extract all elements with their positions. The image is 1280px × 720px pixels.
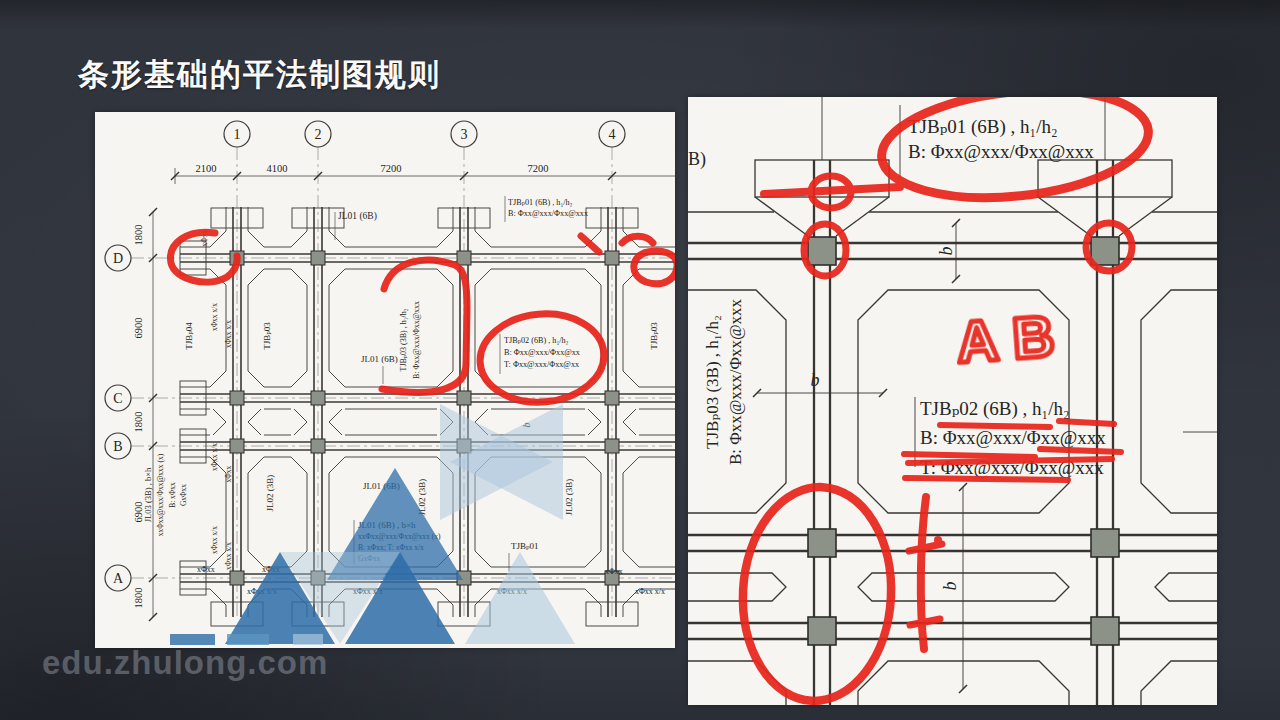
right-plan-svg: B) TJBₚ01 (6B) , h₁/h₂ B: Φxx@xxx/Φxx@xx… — [688, 97, 1217, 705]
right-plan-image: B) TJBₚ01 (6B) , h₁/h₂ B: Φxx@xxx/Φxx@xx… — [688, 97, 1217, 705]
label-tjbp01-1: TJBₚ01 (6B) , h₁/h₂ — [508, 198, 573, 207]
site-watermark: edu.zhulong.com — [42, 644, 328, 682]
label-jl03-2: xxΦxx@xxx/Φxx@xxx (x) — [156, 453, 165, 536]
label-tjbp03-full-1: TJBₚ03 (3B) , h₁/h₂ — [399, 308, 408, 371]
annotation-small-o — [634, 251, 675, 284]
axis-2: 2 — [315, 127, 322, 142]
column-square — [1091, 237, 1119, 265]
label-rebar-v2: xΦxx x/x — [210, 303, 219, 331]
dim-left-1: 1800 — [133, 225, 144, 246]
label-tjbp02-line1: TJBₚ02 (6B) , h₁/h₂ — [920, 398, 1070, 420]
label-tjbp02-1: TJBₚ02 (6B) , h₁/h₂ — [504, 336, 569, 345]
label-rebar-v4: xΦxx x/x — [210, 443, 219, 471]
annotation-dot — [934, 536, 942, 544]
label-edge: B) — [688, 149, 706, 170]
label-tjbp01-2: B: Φxx@xxx/Φxx@xxx — [508, 209, 588, 218]
video-frame: 条形基础的平法制图规则 2100 4 — [0, 0, 1280, 720]
annotation-ab-text: AB — [954, 302, 1070, 375]
label-rebar-s3: xΦxx — [605, 567, 623, 576]
annotation-underline — [904, 454, 1035, 457]
axis-1: 1 — [234, 127, 241, 142]
dim-top-3: 7200 — [381, 163, 402, 174]
dim-left-2: 6900 — [133, 318, 144, 339]
dim-left-5: 1800 — [133, 588, 144, 609]
label-tjbp01-line1: TJBₚ01 (6B) , h₁/h₂ — [908, 116, 1058, 138]
dim-top-4: 7200 — [528, 163, 549, 174]
column-square — [808, 617, 836, 645]
label-rebar-4: xΦxx x/x — [635, 587, 665, 596]
annotation-arc — [622, 236, 653, 243]
label-jl01-mid: JL01 (6B) — [361, 354, 398, 364]
label-tjbp02-line2: B: Φxx@xxx/Φxx@xxx — [920, 427, 1106, 448]
label-b-bottom: b — [940, 582, 960, 591]
label-tjbp04: TJBₚ04 — [184, 322, 194, 350]
page-title: 条形基础的平法制图规则 — [78, 54, 441, 96]
left-plan-svg: 2100 4100 7200 7200 1800 6900 1800 6900 … — [95, 112, 675, 648]
annotation-strike-line — [764, 187, 900, 194]
label-jl02-1: JL02 (3B) — [265, 475, 275, 512]
label-jl03-3: B: xΦxx — [168, 482, 177, 508]
label-tjbp02-3: T: Φxx@xxx/Φxx@xx — [504, 360, 579, 369]
dim-left-3: 1800 — [133, 412, 144, 433]
dim-top-1: 2100 — [196, 163, 217, 174]
label-jl03-1: JL03 (3B) , b×h — [143, 467, 153, 522]
label-rebar-v3: xΦxx x/x — [224, 320, 233, 348]
label-tjbp01-short: TJBₚ01 — [511, 541, 539, 551]
annotation-underline — [905, 478, 1068, 480]
label-rebar-v6: xΦxx x/x — [210, 526, 219, 554]
annotation-underline — [1059, 421, 1114, 424]
axis-4: 4 — [609, 127, 616, 142]
label-b-top: b — [936, 247, 956, 256]
label-tjbp01-line2: B: Φxx@xxx/Φxx@xxx — [908, 141, 1094, 162]
left-plan-image: 2100 4100 7200 7200 1800 6900 1800 6900 … — [95, 112, 675, 648]
label-tjbp02-2: B: Φxx@xxx/Φxx@xx — [504, 348, 580, 357]
label-rebar-s1: xΦxx — [197, 565, 215, 574]
axis-C: C — [113, 391, 122, 406]
column-square — [1091, 529, 1119, 557]
label-rebar-v7: xΦxx x/x — [224, 542, 233, 570]
label-jl03-4: GxΦxx — [179, 484, 188, 506]
annotation-underline — [940, 425, 1050, 427]
label-tjbp03-line1: TJBₚ03 (3B) , h₁/h₂ — [703, 315, 722, 449]
axis-3: 3 — [461, 127, 468, 142]
label-jl01-top: JL01 (6B) — [338, 211, 377, 222]
axis-B: B — [113, 439, 122, 454]
annotation-bottom-ellipse — [738, 483, 897, 704]
label-rebar-v5: xΦxx — [224, 465, 233, 482]
annotation-circle-tjbp02 — [476, 309, 607, 407]
dim-top-2: 4100 — [267, 163, 288, 174]
column-square — [808, 529, 836, 557]
label-tjbp03-left: TJBₚ03 — [262, 322, 272, 350]
column-square — [808, 237, 836, 265]
annotation-tick — [581, 236, 599, 252]
left-red-annotations — [171, 232, 675, 407]
annotation-j-hook — [382, 260, 467, 392]
annotation-underline — [908, 459, 1112, 463]
label-b-left: b — [811, 370, 820, 390]
axis-A: A — [113, 571, 124, 586]
annotation-underline — [1040, 449, 1121, 452]
axis-D: D — [113, 251, 123, 266]
label-tjbp03-line2: B: Φxx@xxx/Φxx@xxx — [726, 298, 745, 465]
label-tjbp03-full-2: B: Φxx@xxx/Φxx@xxx — [412, 301, 421, 379]
label-jl02-3: JL02 (3B) — [564, 479, 574, 516]
column-square — [1091, 617, 1119, 645]
label-tjbp03-right: TJBₚ03 — [649, 322, 659, 350]
